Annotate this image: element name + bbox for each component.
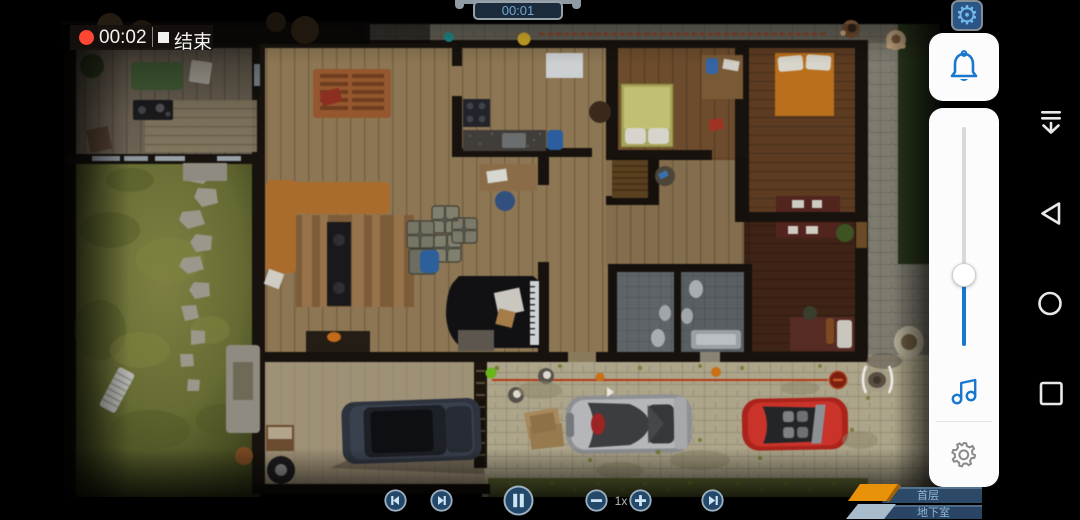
svg-text:首层: 首层 — [917, 488, 939, 502]
svg-text:地下室: 地下室 — [917, 505, 950, 519]
